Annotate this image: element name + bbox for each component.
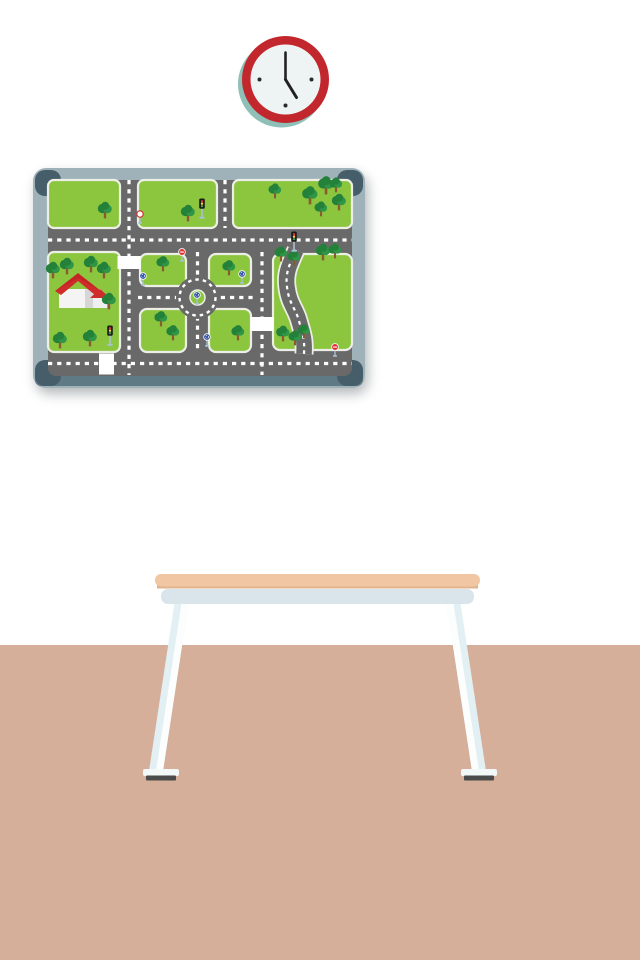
crosswalk bbox=[251, 317, 274, 331]
wall-clock bbox=[237, 33, 334, 130]
table-top bbox=[155, 574, 480, 587]
table-foot-right bbox=[461, 769, 497, 781]
table bbox=[135, 570, 505, 785]
crosswalk bbox=[99, 354, 114, 375]
scene bbox=[0, 0, 640, 960]
table-leg-left bbox=[149, 600, 189, 771]
traffic-map-board bbox=[33, 168, 365, 388]
table-apron bbox=[161, 589, 474, 604]
table-leg-right bbox=[446, 600, 486, 771]
table-foot-left bbox=[143, 769, 179, 781]
crosswalk bbox=[118, 256, 141, 269]
